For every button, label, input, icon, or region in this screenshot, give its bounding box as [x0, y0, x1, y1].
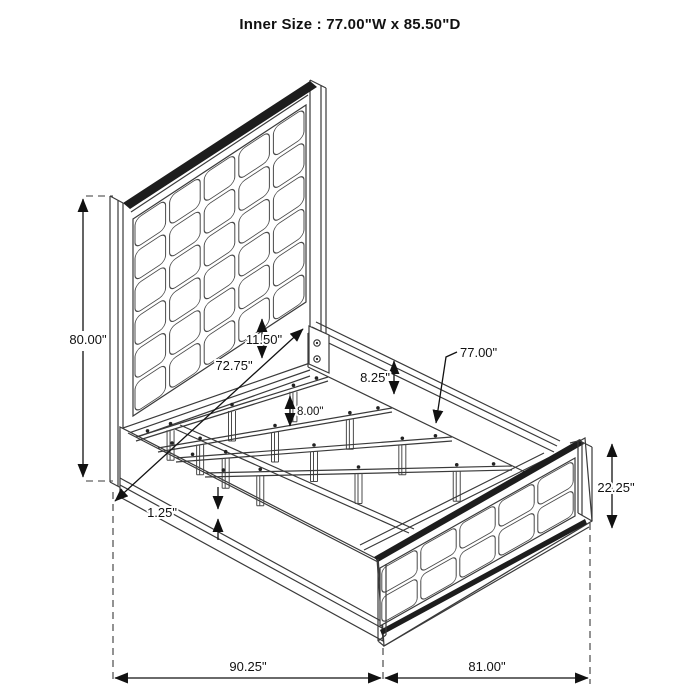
dim-label-side-rail-height: 8.25" [360, 370, 390, 385]
left-side-rail-face [120, 427, 383, 641]
dim-label-leg-height: 8.00" [297, 406, 323, 418]
dim-label-panel-gap: 11.50" [246, 332, 283, 347]
dim-label-slat-length: 77.00" [460, 345, 498, 360]
dim-footboard-height: 22.25" [597, 444, 635, 528]
dim-label-headboard-width: 72.75" [215, 358, 253, 373]
dim-label-rail-lip: 1.25" [147, 505, 177, 520]
dimension-diagram: Inner Size : 77.00"W x 85.50"D [0, 0, 700, 700]
footboard [374, 438, 592, 646]
dim-label-footboard-height: 22.25" [597, 480, 635, 495]
bracket-screw [316, 342, 318, 344]
dim-label-headboard-height: 80.00" [69, 332, 107, 347]
bracket-screw [316, 358, 318, 360]
dim-headboard-height: 80.00" [69, 196, 113, 481]
rail-bracket [309, 326, 329, 373]
dim-label-overall-width: 81.00" [468, 659, 506, 674]
dim-label-overall-depth: 90.25" [229, 659, 267, 674]
right-side-rail [308, 322, 560, 486]
bed-line-drawing: 80.00" 72.75" 11.50" 8.25" 8.00" 77.00" … [0, 0, 700, 700]
dim-slat-length: 77.00" [436, 345, 498, 423]
